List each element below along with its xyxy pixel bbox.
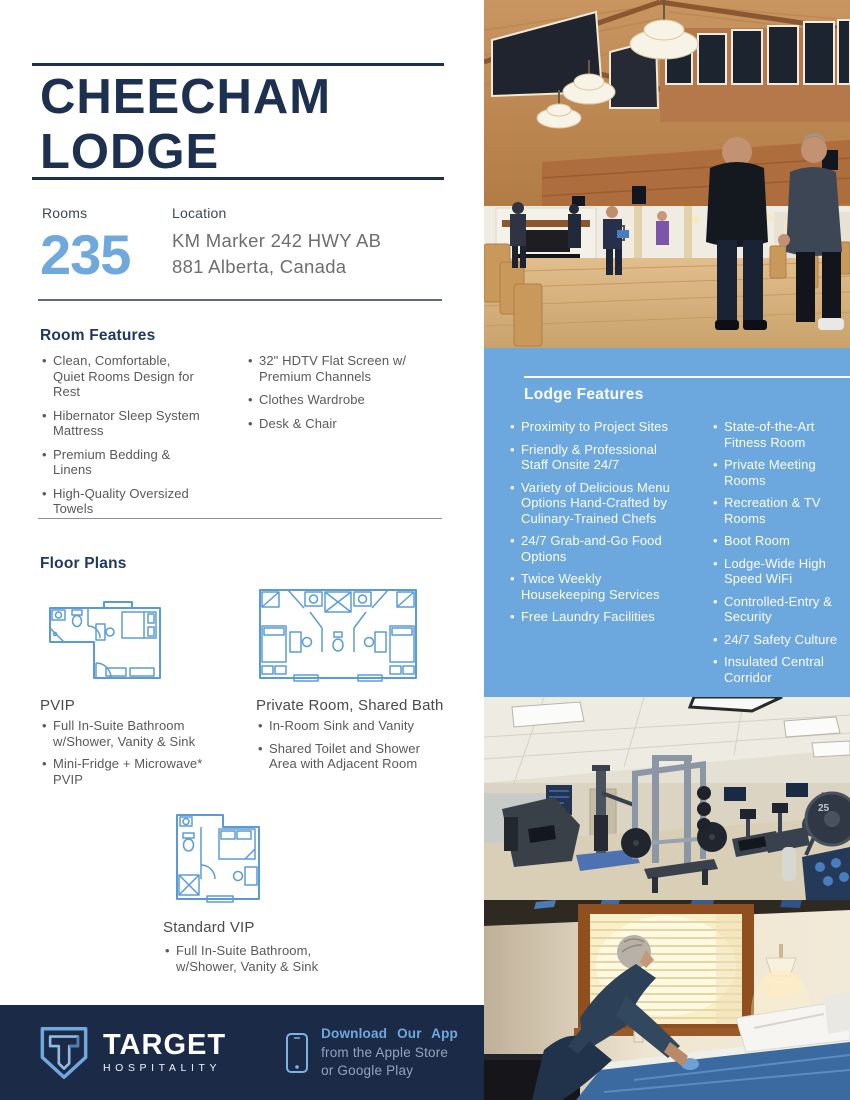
lodge-interior-photo xyxy=(484,0,850,348)
room-features-col1: Clean, Comfortable, Quiet Rooms Design f… xyxy=(42,353,200,525)
room-feature-item: 32" HDTV Flat Screen w/ Premium Channels xyxy=(248,353,426,384)
target-hospitality-logo: TARGET HOSPITALITY xyxy=(38,1024,226,1082)
lodge-features-rule xyxy=(524,376,850,378)
download-line1: Download Our App xyxy=(321,1026,458,1041)
lodge-features-col2: State-of-the-Art Fitness RoomPrivate Mee… xyxy=(713,419,850,692)
lodge-features-heading: Lodge Features xyxy=(524,386,644,404)
plan-bullet: In-Room Sink and Vanity xyxy=(258,718,436,734)
title-rule-bottom xyxy=(32,177,444,180)
weight-plate-label: 25 xyxy=(818,803,830,814)
plan-bullet: Mini-Fridge + Microwave* PVIP xyxy=(42,756,222,787)
room-features-heading: Room Features xyxy=(40,327,155,345)
download-text: Download Our App from the Apple Store or… xyxy=(321,1026,458,1080)
footer: TARGET HOSPITALITY Download Our App from… xyxy=(0,1005,484,1100)
plan-name-shared-bath: Private Room, Shared Bath xyxy=(256,697,444,714)
floorplan-pvip-drawing xyxy=(48,600,164,682)
lodge-feature-item: Recreation & TV Rooms xyxy=(713,495,850,526)
lodge-feature-item: Variety of Delicious Menu Options Hand-C… xyxy=(510,480,670,527)
plan-pvip-bullets: Full In-Suite Bathroom w/Shower, Vanity … xyxy=(42,718,222,794)
page-title-line1: CHEECHAM xyxy=(40,70,331,125)
fitness-room-photo: 25 xyxy=(484,697,850,900)
plan-bullet: Shared Toilet and Shower Area with Adjac… xyxy=(258,741,436,772)
phone-icon xyxy=(285,1032,309,1074)
plan-name-pvip: PVIP xyxy=(40,697,75,714)
lodge-feature-item: Friendly & Professional Staff Onsite 24/… xyxy=(510,442,670,473)
housekeeping-photo xyxy=(484,900,850,1100)
rooms-label: Rooms xyxy=(42,205,87,221)
page-title-line2: LODGE xyxy=(40,125,331,180)
download-app-block: Download Our App from the Apple Store or… xyxy=(285,1026,458,1080)
room-feature-item: Clothes Wardrobe xyxy=(248,392,426,408)
floorplan-standard-vip-drawing xyxy=(163,813,263,903)
lodge-feature-item: 24/7 Safety Culture xyxy=(713,632,850,648)
room-feature-item: Desk & Chair xyxy=(248,416,426,432)
lodge-feature-item: 24/7 Grab-and-Go Food Options xyxy=(510,533,670,564)
brand-subtitle: HOSPITALITY xyxy=(103,1062,226,1074)
download-line2: from the Apple Store xyxy=(321,1044,458,1062)
rooms-count: 235 xyxy=(40,222,130,287)
room-feature-item: Premium Bedding & Linens xyxy=(42,447,200,478)
lodge-feature-item: Insulated Central Corridor xyxy=(713,654,850,685)
plan-standard-vip-bullets: Full In-Suite Bathroom, w/Shower, Vanity… xyxy=(165,943,365,981)
download-line3: or Google Play xyxy=(321,1062,458,1080)
target-shield-logo-icon xyxy=(38,1024,90,1082)
lodge-feature-item: State-of-the-Art Fitness Room xyxy=(713,419,850,450)
lodge-features-col1: Proximity to Project SitesFriendly & Pro… xyxy=(510,419,670,632)
plan-bullet: Full In-Suite Bathroom, w/Shower, Vanity… xyxy=(165,943,365,974)
location-label: Location xyxy=(172,205,227,221)
room-feature-item: High-Quality Oversized Towels xyxy=(42,486,200,517)
lodge-brochure-page: CHEECHAM LODGE Rooms 235 Location KM Mar… xyxy=(0,0,850,1100)
location-address: KM Marker 242 HWY AB 881 Alberta, Canada xyxy=(172,228,381,280)
lodge-feature-item: Controlled-Entry & Security xyxy=(713,594,850,625)
room-feature-item: Clean, Comfortable, Quiet Rooms Design f… xyxy=(42,353,200,400)
title-rule-top xyxy=(32,63,444,66)
plan-shared-bath-bullets: In-Room Sink and VanityShared Toilet and… xyxy=(258,718,436,779)
floorplan-shared-bath-drawing xyxy=(258,588,420,684)
lodge-feature-item: Free Laundry Facilities xyxy=(510,609,670,625)
divider-room-features xyxy=(38,518,442,519)
divider-stats xyxy=(38,299,442,301)
floor-plans-heading: Floor Plans xyxy=(40,555,127,573)
lodge-feature-item: Boot Room xyxy=(713,533,850,549)
plan-bullet: Full In-Suite Bathroom w/Shower, Vanity … xyxy=(42,718,222,749)
room-features-col2: 32" HDTV Flat Screen w/ Premium Channels… xyxy=(248,353,426,439)
address-line1: KM Marker 242 HWY AB xyxy=(172,228,381,254)
brand-text: TARGET HOSPITALITY xyxy=(103,1031,226,1074)
room-feature-item: Hibernator Sleep System Mattress xyxy=(42,408,200,439)
page-title: CHEECHAM LODGE xyxy=(40,70,331,180)
lodge-feature-item: Twice Weekly Housekeeping Services xyxy=(510,571,670,602)
lodge-feature-item: Lodge-Wide High Speed WiFi xyxy=(713,556,850,587)
lodge-feature-item: Private Meeting Rooms xyxy=(713,457,850,488)
address-line2: 881 Alberta, Canada xyxy=(172,254,381,280)
brand-name: TARGET xyxy=(103,1031,226,1059)
lodge-feature-item: Proximity to Project Sites xyxy=(510,419,670,435)
plan-name-standard-vip: Standard VIP xyxy=(163,919,255,936)
